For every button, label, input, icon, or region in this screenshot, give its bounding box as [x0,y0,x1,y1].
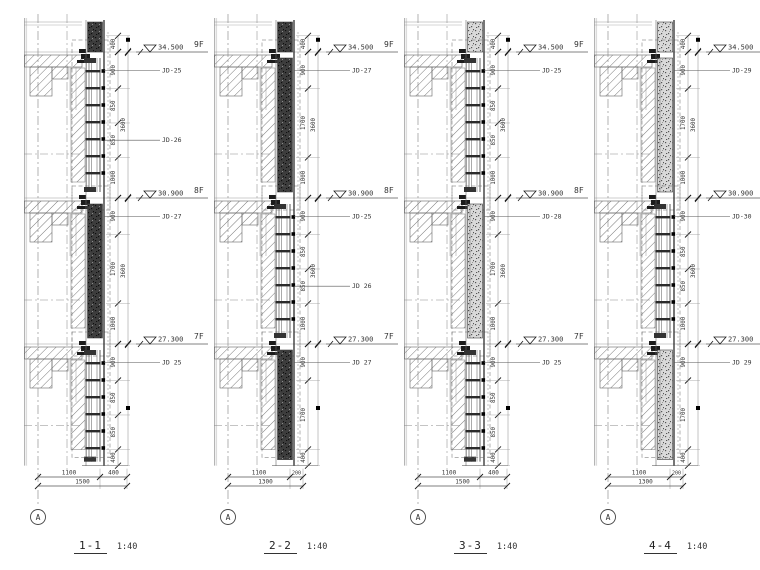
svg-text:3600: 3600 [311,118,317,132]
svg-text:A: A [36,513,41,522]
svg-text:1500: 1500 [75,479,90,486]
section-title: 3-3 [454,539,487,554]
svg-text:1000: 1000 [301,170,307,184]
svg-text:1500: 1500 [455,479,470,486]
svg-text:34.500: 34.500 [348,44,373,52]
svg-text:8F: 8F [194,186,204,195]
section-title: 2-2 [264,539,297,554]
svg-text:200: 200 [292,471,301,477]
section-1-drawing: 40090085085010003600JD-25JD-269001700100… [24,14,214,534]
section-4-caption: 4-41:40 [594,534,760,553]
svg-text:JD 26: JD 26 [352,282,372,290]
svg-text:JD 25: JD 25 [542,358,562,366]
svg-text:30.900: 30.900 [728,190,753,198]
section-1-caption: 1-11:40 [24,534,214,553]
svg-text:3600: 3600 [121,264,127,278]
svg-text:A: A [606,513,611,522]
svg-text:27.300: 27.300 [348,336,373,344]
dimension-chains: 40090085085010003600JD-25JD-269001700100… [104,33,182,469]
section-scale: 1:40 [497,542,517,552]
svg-text:JD-29: JD-29 [732,66,752,74]
bottom-dimensions: 11004001500 [35,469,130,489]
svg-text:400: 400 [111,452,117,463]
svg-text:850: 850 [111,100,117,111]
section-3-drawing: 40090085085010003600JD-25900170010003600… [404,14,594,534]
bottom-dimensions: 11002001300 [225,469,306,489]
svg-text:200: 200 [672,471,681,477]
svg-text:1000: 1000 [491,170,497,184]
svg-text:7F: 7F [384,332,394,341]
dimension-chains: 400900170010003600JD-2990085085010003600… [674,33,752,469]
svg-text:JD-25: JD-25 [542,66,562,74]
bottom-dimensions: 11002001300 [605,469,686,489]
section-3: 40090085085010003600JD-25900170010003600… [404,14,594,570]
svg-text:400: 400 [681,38,687,49]
svg-text:JD-26: JD-26 [162,136,182,144]
svg-text:JD 25: JD 25 [162,358,182,366]
svg-text:850: 850 [491,134,497,145]
elevation-markers: 34.5009F30.9008F27.3007F [125,40,208,348]
dimension-chains: 400900170010003600JD-2790085085010003600… [294,33,372,469]
elevation-markers: 34.5009F30.9008F27.3007F [695,40,760,348]
svg-text:30.900: 30.900 [538,190,563,198]
section-2-drawing: 400900170010003600JD-2790085085010003600… [214,14,404,534]
svg-text:850: 850 [301,246,307,257]
svg-text:1000: 1000 [111,316,117,330]
svg-text:1700: 1700 [681,407,687,421]
svg-text:JD-30: JD-30 [732,212,752,220]
svg-text:1000: 1000 [111,170,117,184]
section-scale: 1:40 [117,542,137,552]
svg-text:JD-25: JD-25 [352,212,372,220]
svg-text:3600: 3600 [311,264,317,278]
svg-text:400: 400 [108,470,119,477]
elevation-markers: 34.5009F30.9008F27.3007F [315,40,398,348]
svg-text:1100: 1100 [62,470,77,477]
svg-text:9F: 9F [384,40,394,49]
svg-text:3600: 3600 [691,118,697,132]
svg-text:27.300: 27.300 [538,336,563,344]
svg-text:850: 850 [681,246,687,257]
svg-text:1000: 1000 [491,316,497,330]
svg-text:7F: 7F [574,332,584,341]
left-structure [214,14,398,472]
section-4: 400900170010003600JD-2990085085010003600… [594,14,760,570]
svg-text:3600: 3600 [691,264,697,278]
svg-text:34.500: 34.500 [538,44,563,52]
svg-text:850: 850 [491,426,497,437]
svg-text:1000: 1000 [301,316,307,330]
svg-text:1700: 1700 [681,115,687,129]
svg-text:850: 850 [491,100,497,111]
section-2: 400900170010003600JD-2790085085010003600… [214,14,404,570]
svg-text:400: 400 [301,452,307,463]
svg-text:8F: 8F [384,186,394,195]
svg-text:1100: 1100 [442,470,457,477]
svg-text:1100: 1100 [252,470,267,477]
svg-text:850: 850 [491,392,497,403]
svg-text:34.500: 34.500 [158,44,183,52]
dimension-chains: 40090085085010003600JD-25900170010003600… [484,33,562,469]
svg-text:400: 400 [111,38,117,49]
svg-text:A: A [226,513,231,522]
bottom-dimensions: 11004001500 [415,469,510,489]
svg-text:27.300: 27.300 [158,336,183,344]
svg-text:3600: 3600 [121,118,127,132]
svg-text:1300: 1300 [638,479,653,486]
svg-text:7F: 7F [194,332,204,341]
section-3-caption: 3-31:40 [404,534,594,553]
svg-text:1000: 1000 [681,316,687,330]
svg-text:30.900: 30.900 [158,190,183,198]
svg-text:30.900: 30.900 [348,190,373,198]
svg-text:400: 400 [488,470,499,477]
svg-text:9F: 9F [574,40,584,49]
svg-text:1700: 1700 [111,261,117,275]
svg-text:1100: 1100 [632,470,647,477]
left-structure [594,14,760,472]
section-4-drawing: 400900170010003600JD-2990085085010003600… [594,14,760,534]
svg-text:JD-25: JD-25 [162,66,182,74]
svg-text:3600: 3600 [501,264,507,278]
svg-text:JD 29: JD 29 [732,358,752,366]
svg-text:A: A [416,513,421,522]
svg-text:27.300: 27.300 [728,336,753,344]
svg-text:JD-27: JD-27 [162,212,182,220]
cad-sheet: 40090085085010003600JD-25JD-269001700100… [0,0,760,570]
section-scale: 1:40 [687,542,707,552]
svg-text:850: 850 [111,392,117,403]
section-1: 40090085085010003600JD-25JD-269001700100… [24,14,214,570]
svg-text:1300: 1300 [258,479,273,486]
svg-text:850: 850 [111,426,117,437]
section-title: 1-1 [74,539,107,554]
section-2-caption: 2-21:40 [214,534,404,553]
svg-text:1000: 1000 [681,170,687,184]
svg-text:1700: 1700 [301,115,307,129]
svg-text:1700: 1700 [491,261,497,275]
svg-text:JD 27: JD 27 [352,358,372,366]
elevation-markers: 34.5009F30.9008F27.3007F [505,40,588,348]
svg-text:JD-27: JD-27 [352,66,372,74]
svg-text:400: 400 [491,452,497,463]
svg-text:8F: 8F [574,186,584,195]
svg-text:3600: 3600 [501,118,507,132]
svg-text:9F: 9F [194,40,204,49]
svg-text:400: 400 [681,452,687,463]
section-title: 4-4 [644,539,677,554]
svg-text:400: 400 [301,38,307,49]
svg-text:JD-28: JD-28 [542,212,562,220]
svg-text:850: 850 [681,280,687,291]
svg-text:400: 400 [491,38,497,49]
svg-text:34.500: 34.500 [728,44,753,52]
section-scale: 1:40 [307,542,327,552]
svg-text:1700: 1700 [301,407,307,421]
